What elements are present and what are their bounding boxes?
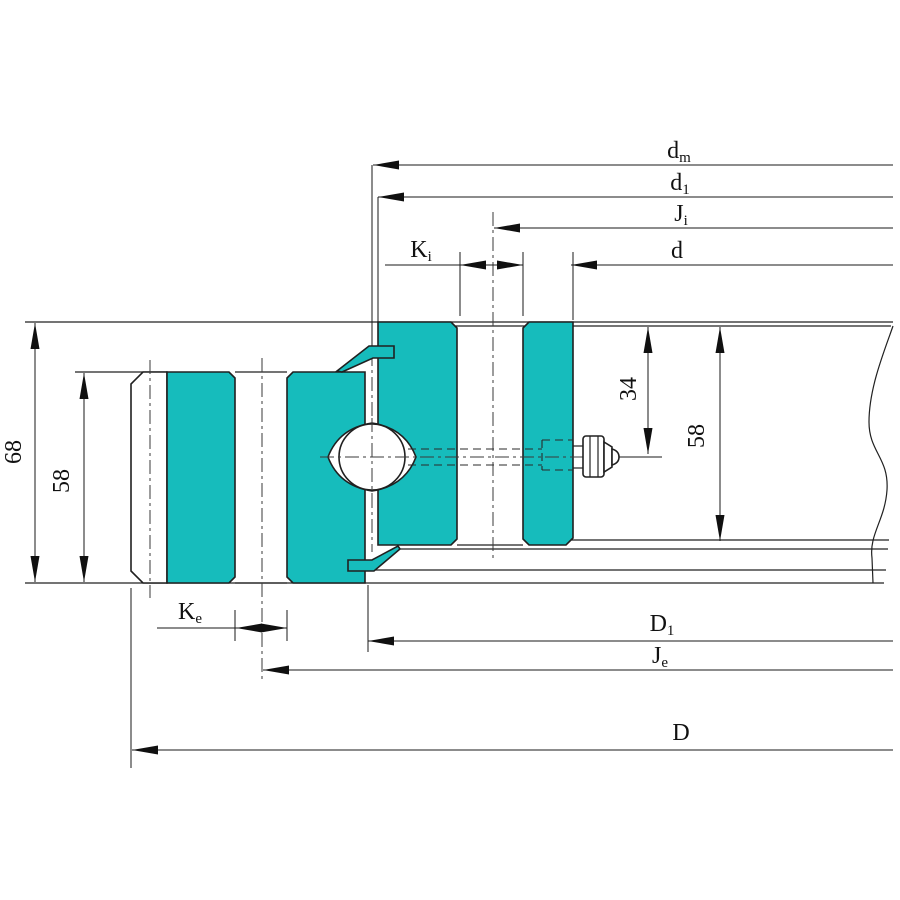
dimension-Ke: Ke — [157, 599, 287, 641]
dimension-Ki: Ki — [385, 237, 523, 316]
label-D1: D1 — [650, 611, 675, 639]
label-dm: dm — [667, 138, 691, 166]
break-line — [869, 326, 893, 583]
drawing-page: dm d1 Ji Ki d 68 58 — [0, 0, 900, 900]
dimension-D1: D1 — [368, 585, 893, 652]
label-d1: d1 — [670, 170, 690, 198]
dimension-Ji: Ji — [494, 201, 893, 233]
label-inner-ring-height: 58 — [684, 424, 710, 448]
outer-ring-flange — [131, 372, 167, 583]
inner-ring-right-section — [523, 322, 573, 545]
label-total-height: 68 — [1, 440, 27, 464]
outer-ring-left-section — [167, 372, 235, 583]
dimension-68: 68 — [1, 323, 40, 582]
dimension-58-left: 58 — [49, 373, 89, 582]
mounting-plate-top — [25, 322, 893, 326]
label-D: D — [672, 720, 689, 746]
bearing-section-drawing: dm d1 Ji Ki d 68 58 — [0, 0, 900, 900]
label-Ji: Ji — [674, 201, 688, 229]
label-Ki: Ki — [410, 237, 432, 265]
label-outer-ring-height: 58 — [49, 469, 75, 493]
grease-fitting-hex-body — [583, 436, 604, 477]
dimension-D: D — [131, 588, 893, 768]
label-grease-offset: 34 — [616, 377, 642, 401]
grease-fitting-nipple — [612, 449, 619, 465]
dimension-dm: dm — [372, 138, 893, 346]
label-Je: Je — [652, 643, 668, 671]
dimension-d: d — [571, 238, 893, 320]
dimension-34: 34 — [616, 327, 653, 454]
dimension-Je: Je — [263, 643, 893, 675]
dimension-d1: d1 — [378, 170, 893, 322]
label-d: d — [671, 238, 683, 264]
label-Ke: Ke — [178, 599, 202, 627]
dimension-58-right: 58 — [684, 327, 725, 541]
outer-ring — [75, 358, 365, 682]
grease-fitting-cone — [604, 442, 612, 472]
